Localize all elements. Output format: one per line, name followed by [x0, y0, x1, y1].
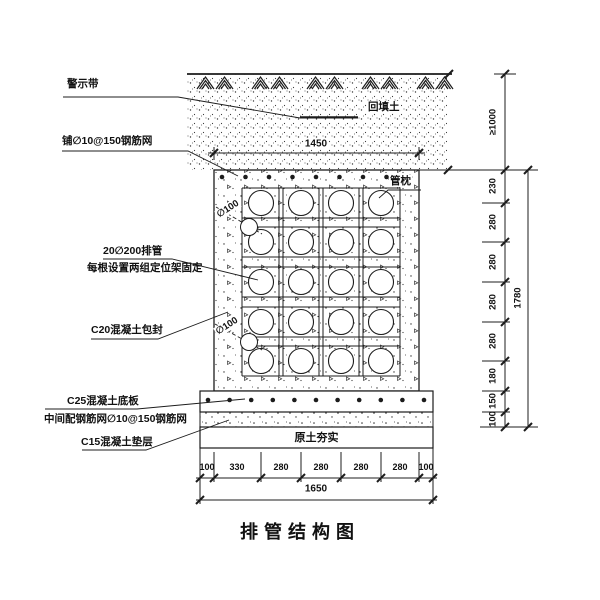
dim-right-seg-2: 280	[488, 254, 499, 270]
dim-right-total: 1780	[513, 287, 524, 308]
label-pipe-bank: 20∅200排管	[103, 245, 162, 257]
label-base-plate-mesh: 中间配钢筋网∅10@150钢筋网	[44, 413, 187, 425]
dim-right-seg-1: 280	[488, 214, 499, 230]
dim-bottom-seg-5: 280	[392, 462, 407, 472]
label-base-plate: C25混凝土底板	[67, 395, 139, 407]
drawing-page: 警示带 铺∅10@150钢筋网 回填土 管枕 20∅200排管 每根设置两组定位…	[0, 0, 600, 600]
dim-bottom-total: 1650	[304, 484, 328, 495]
dim-top-width: 1450	[304, 139, 328, 150]
label-pipe-bank-note: 每根设置两组定位架固定	[87, 262, 203, 274]
dim-right-seg-3: 280	[488, 294, 499, 310]
dim-right-seg-5: 180	[488, 368, 499, 384]
dim-cover-depth: ≥1000	[488, 109, 499, 135]
drawing-title: 排管结构图	[0, 518, 600, 544]
dim-right-seg-4: 280	[488, 333, 499, 349]
label-encasement: C20混凝土包封	[91, 324, 163, 336]
backfill-zone	[187, 74, 453, 170]
dim-right-seg-7: 100	[488, 411, 499, 427]
label-backfill-soil: 回填土	[367, 101, 401, 113]
dim-bottom-seg-6: 100	[418, 462, 433, 472]
dim-bottom-seg-3: 280	[313, 462, 328, 472]
label-top-rebar-mesh: 铺∅10@150钢筋网	[62, 135, 152, 147]
label-cushion: C15混凝土垫层	[81, 436, 153, 448]
dim-right-seg-6: 150	[488, 393, 499, 409]
label-pipe-pillow: 管枕	[389, 175, 412, 187]
label-warning-tape: 警示带	[67, 78, 99, 90]
dim-right-seg-0: 230	[488, 178, 499, 194]
dim-bottom-seg-0: 100	[199, 462, 214, 472]
label-compacted-soil: 原土夯实	[200, 429, 433, 445]
dim-bottom-seg-2: 280	[273, 462, 288, 472]
dim-bottom-seg-4: 280	[353, 462, 368, 472]
cushion-layer	[200, 412, 433, 427]
dim-bottom-seg-1: 330	[229, 462, 244, 472]
